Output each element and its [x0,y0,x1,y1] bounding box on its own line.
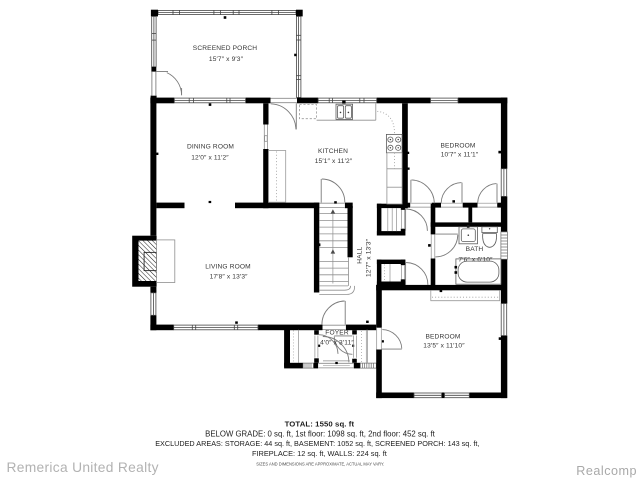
svg-text:Remerica United Realty: Remerica United Realty [7,460,159,475]
svg-text:EXCLUDED AREAS: STORAGE: 44 sq: EXCLUDED AREAS: STORAGE: 44 sq. ft, BASE… [155,439,479,448]
svg-text:DINING ROOM: DINING ROOM [187,143,234,150]
svg-text:BATH: BATH [466,246,484,253]
svg-text:LIVING ROOM: LIVING ROOM [205,263,251,270]
svg-text:12′0″ x 11′2″: 12′0″ x 11′2″ [191,154,229,161]
svg-text:4′0″ x 3′11″: 4′0″ x 3′11″ [320,339,354,346]
svg-text:HALL: HALL [357,246,364,263]
svg-text:FIREPLACE: 12 sq. ft, WALLS: 2: FIREPLACE: 12 sq. ft, WALLS: 224 sq. ft [252,449,387,458]
svg-text:BEDROOM: BEDROOM [425,333,460,340]
svg-text:BELOW GRADE: 0 sq. ft, 1st flo: BELOW GRADE: 0 sq. ft, 1st floor: 1098 s… [205,430,436,439]
svg-text:15′1″ x 11′2″: 15′1″ x 11′2″ [315,158,353,165]
svg-text:SCREENED PORCH: SCREENED PORCH [193,45,257,52]
svg-text:KITCHEN: KITCHEN [318,148,348,155]
svg-text:Realcomp: Realcomp [576,464,637,478]
svg-text:12′7″ x 13′3″: 12′7″ x 13′3″ [365,238,372,277]
svg-text:FOYER: FOYER [325,330,349,337]
svg-text:17′8″ x 13′3″: 17′8″ x 13′3″ [210,274,249,281]
svg-text:SIZES AND DIMENSIONS ARE APPRO: SIZES AND DIMENSIONS ARE APPROXIMATE, AC… [256,462,384,467]
svg-text:7′6″ x 6′10″: 7′6″ x 6′10″ [458,256,493,263]
svg-text:BEDROOM: BEDROOM [440,142,475,149]
svg-text:15′7″ x 9′3″: 15′7″ x 9′3″ [209,56,244,63]
svg-text:TOTAL: 1550 sq. ft: TOTAL: 1550 sq. ft [285,419,355,428]
svg-text:13′5″ x 11′10″: 13′5″ x 11′10″ [423,342,465,349]
svg-text:10′7″ x 11′1″: 10′7″ x 11′1″ [441,151,479,158]
